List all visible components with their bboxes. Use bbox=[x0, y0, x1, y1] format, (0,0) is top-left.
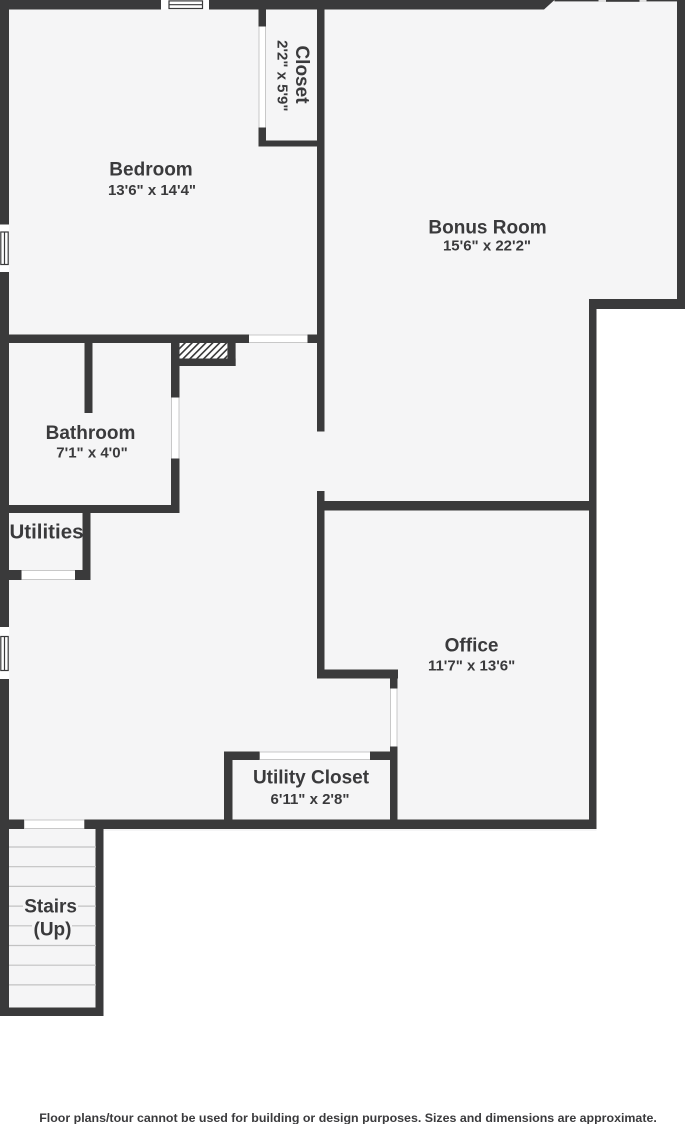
svg-text:Floor plans/tour cannot be use: Floor plans/tour cannot be used for buil… bbox=[39, 1111, 657, 1124]
svg-text:Closet: Closet bbox=[291, 45, 312, 104]
svg-text:Bonus Room: Bonus Room bbox=[428, 218, 546, 239]
svg-text:Office: Office bbox=[445, 636, 499, 657]
svg-text:13'6" x 14'4": 13'6" x 14'4" bbox=[108, 182, 196, 199]
svg-text:6'11" x 2'8": 6'11" x 2'8" bbox=[271, 791, 350, 808]
svg-text:15'6" x 22'2": 15'6" x 22'2" bbox=[443, 238, 531, 255]
svg-text:11'7" x 13'6": 11'7" x 13'6" bbox=[428, 658, 515, 675]
svg-text:Utilities: Utilities bbox=[9, 521, 83, 544]
svg-text:Bedroom: Bedroom bbox=[109, 160, 192, 181]
svg-text:Bathroom: Bathroom bbox=[46, 423, 136, 444]
svg-text:(Up): (Up) bbox=[34, 920, 72, 941]
svg-text:Stairs: Stairs bbox=[24, 897, 77, 918]
svg-text:7'1" x 4'0": 7'1" x 4'0" bbox=[56, 445, 127, 462]
svg-text:2'2" x 5'9": 2'2" x 5'9" bbox=[274, 40, 291, 111]
svg-text:Utility Closet: Utility Closet bbox=[253, 768, 370, 789]
